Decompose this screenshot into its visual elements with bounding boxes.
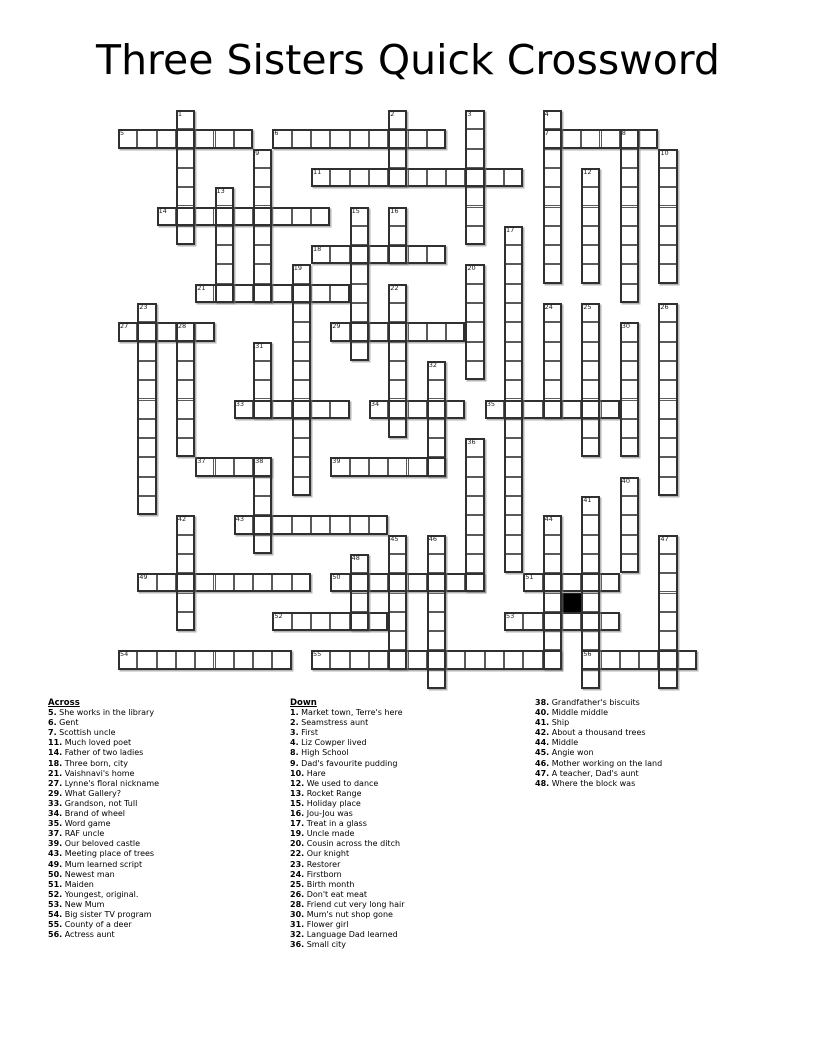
- grid-cell[interactable]: [504, 554, 523, 573]
- grid-cell[interactable]: [562, 573, 581, 592]
- grid-cell[interactable]: [620, 226, 639, 245]
- grid-cell[interactable]: [658, 457, 677, 476]
- grid-cell[interactable]: [620, 438, 639, 457]
- grid-cell[interactable]: [311, 245, 330, 264]
- grid-cell[interactable]: [253, 361, 272, 380]
- grid-cell[interactable]: [253, 264, 272, 283]
- grid-cell[interactable]: [504, 477, 523, 496]
- grid-cell[interactable]: [176, 322, 195, 341]
- grid-cell[interactable]: [253, 477, 272, 496]
- grid-cell[interactable]: [350, 457, 369, 476]
- grid-cell[interactable]: [581, 438, 600, 457]
- grid-cell[interactable]: [658, 419, 677, 438]
- grid-cell[interactable]: [658, 303, 677, 322]
- grid-cell[interactable]: [543, 554, 562, 573]
- grid-cell[interactable]: [658, 593, 677, 612]
- grid-cell[interactable]: [427, 400, 446, 419]
- grid-cell[interactable]: [253, 457, 272, 476]
- grid-cell[interactable]: [581, 400, 600, 419]
- grid-cell[interactable]: [176, 554, 195, 573]
- grid-cell[interactable]: [427, 535, 446, 554]
- grid-cell[interactable]: [408, 168, 427, 187]
- grid-cell[interactable]: [350, 284, 369, 303]
- grid-cell[interactable]: [350, 303, 369, 322]
- grid-cell[interactable]: [427, 380, 446, 399]
- grid-cell[interactable]: [639, 129, 658, 148]
- grid-cell[interactable]: [504, 438, 523, 457]
- grid-cell[interactable]: [292, 612, 311, 631]
- grid-cell[interactable]: [581, 515, 600, 534]
- grid-cell[interactable]: [427, 457, 446, 476]
- grid-cell[interactable]: [234, 207, 253, 226]
- grid-cell[interactable]: [581, 168, 600, 187]
- grid-cell[interactable]: [176, 187, 195, 206]
- grid-cell[interactable]: [543, 129, 562, 148]
- grid-cell[interactable]: [215, 226, 234, 245]
- grid-cell[interactable]: [195, 573, 214, 592]
- grid-cell[interactable]: [658, 149, 677, 168]
- grid-cell[interactable]: [504, 264, 523, 283]
- grid-cell[interactable]: [118, 650, 137, 669]
- grid-cell[interactable]: [253, 284, 272, 303]
- grid-cell[interactable]: [388, 535, 407, 554]
- grid-cell[interactable]: [137, 400, 156, 419]
- grid-cell[interactable]: [311, 284, 330, 303]
- grid-cell[interactable]: [330, 515, 349, 534]
- grid-cell[interactable]: [369, 322, 388, 341]
- grid-cell[interactable]: [369, 245, 388, 264]
- grid-cell[interactable]: [465, 303, 484, 322]
- grid-cell[interactable]: [465, 149, 484, 168]
- grid-cell[interactable]: [388, 593, 407, 612]
- grid-cell[interactable]: [658, 554, 677, 573]
- grid-cell[interactable]: [369, 650, 388, 669]
- grid-cell[interactable]: [465, 187, 484, 206]
- grid-cell[interactable]: [601, 612, 620, 631]
- grid-cell[interactable]: [388, 361, 407, 380]
- grid-cell[interactable]: [562, 400, 581, 419]
- grid-cell[interactable]: [581, 342, 600, 361]
- grid-cell[interactable]: [639, 650, 658, 669]
- grid-cell[interactable]: [253, 535, 272, 554]
- grid-cell[interactable]: [350, 573, 369, 592]
- grid-cell[interactable]: [446, 168, 465, 187]
- grid-cell[interactable]: [658, 187, 677, 206]
- grid-cell[interactable]: [523, 612, 542, 631]
- grid-cell[interactable]: [408, 573, 427, 592]
- grid-cell[interactable]: [330, 129, 349, 148]
- grid-cell[interactable]: [388, 380, 407, 399]
- grid-cell[interactable]: [157, 650, 176, 669]
- grid-cell[interactable]: [504, 245, 523, 264]
- grid-cell[interactable]: [504, 457, 523, 476]
- grid-cell[interactable]: [388, 110, 407, 129]
- grid-cell[interactable]: [176, 419, 195, 438]
- grid-cell[interactable]: [658, 322, 677, 341]
- grid-cell[interactable]: [562, 612, 581, 631]
- grid-cell[interactable]: [253, 207, 272, 226]
- grid-cell[interactable]: [330, 612, 349, 631]
- grid-cell[interactable]: [504, 650, 523, 669]
- grid-cell[interactable]: [658, 670, 677, 689]
- grid-cell[interactable]: [504, 400, 523, 419]
- grid-cell[interactable]: [427, 612, 446, 631]
- grid-cell[interactable]: [292, 515, 311, 534]
- grid-cell[interactable]: [581, 612, 600, 631]
- grid-cell[interactable]: [465, 284, 484, 303]
- grid-cell[interactable]: [620, 496, 639, 515]
- grid-cell[interactable]: [408, 322, 427, 341]
- grid-cell[interactable]: [215, 284, 234, 303]
- grid-cell[interactable]: [465, 438, 484, 457]
- grid-cell[interactable]: [292, 477, 311, 496]
- grid-cell[interactable]: [465, 650, 484, 669]
- grid-cell[interactable]: [504, 342, 523, 361]
- grid-cell[interactable]: [388, 226, 407, 245]
- grid-cell[interactable]: [369, 515, 388, 534]
- grid-cell[interactable]: [465, 342, 484, 361]
- grid-cell[interactable]: [504, 284, 523, 303]
- grid-cell[interactable]: [543, 264, 562, 283]
- grid-cell[interactable]: [292, 438, 311, 457]
- grid-cell[interactable]: [581, 187, 600, 206]
- grid-cell[interactable]: [581, 496, 600, 515]
- grid-cell[interactable]: [543, 573, 562, 592]
- grid-cell[interactable]: [350, 342, 369, 361]
- grid-cell[interactable]: [427, 322, 446, 341]
- grid-cell[interactable]: [658, 400, 677, 419]
- grid-cell[interactable]: [234, 284, 253, 303]
- grid-cell[interactable]: [330, 284, 349, 303]
- grid-cell[interactable]: [543, 593, 562, 612]
- grid-cell[interactable]: [465, 496, 484, 515]
- grid-cell[interactable]: [543, 226, 562, 245]
- grid-cell[interactable]: [620, 515, 639, 534]
- grid-cell[interactable]: [581, 207, 600, 226]
- grid-cell[interactable]: [311, 515, 330, 534]
- grid-cell[interactable]: [620, 400, 639, 419]
- grid-cell[interactable]: [350, 264, 369, 283]
- grid-cell[interactable]: [292, 207, 311, 226]
- grid-cell[interactable]: [234, 515, 253, 534]
- grid-cell[interactable]: [543, 400, 562, 419]
- grid-cell[interactable]: [658, 226, 677, 245]
- grid-cell[interactable]: [601, 400, 620, 419]
- grid-cell[interactable]: [253, 573, 272, 592]
- grid-cell[interactable]: [369, 400, 388, 419]
- grid-cell[interactable]: [504, 226, 523, 245]
- grid-cell[interactable]: [504, 419, 523, 438]
- grid-cell[interactable]: [311, 612, 330, 631]
- grid-cell[interactable]: [658, 631, 677, 650]
- grid-cell[interactable]: [465, 515, 484, 534]
- grid-cell[interactable]: [620, 245, 639, 264]
- grid-cell[interactable]: [176, 650, 195, 669]
- grid-cell[interactable]: [581, 380, 600, 399]
- grid-cell[interactable]: [465, 573, 484, 592]
- grid-cell[interactable]: [658, 612, 677, 631]
- grid-cell[interactable]: [388, 457, 407, 476]
- grid-cell[interactable]: [350, 245, 369, 264]
- grid-cell[interactable]: [465, 554, 484, 573]
- grid-cell[interactable]: [446, 650, 465, 669]
- grid-cell[interactable]: [369, 129, 388, 148]
- grid-cell[interactable]: [157, 129, 176, 148]
- grid-cell[interactable]: [388, 612, 407, 631]
- grid-cell[interactable]: [137, 438, 156, 457]
- grid-cell[interactable]: [195, 284, 214, 303]
- grid-cell[interactable]: [176, 573, 195, 592]
- grid-cell[interactable]: [137, 573, 156, 592]
- grid-cell[interactable]: [543, 515, 562, 534]
- grid-cell[interactable]: [388, 245, 407, 264]
- grid-cell[interactable]: [292, 380, 311, 399]
- grid-cell[interactable]: [523, 573, 542, 592]
- grid-cell[interactable]: [427, 245, 446, 264]
- grid-cell[interactable]: [292, 284, 311, 303]
- grid-cell[interactable]: [137, 496, 156, 515]
- grid-cell[interactable]: [485, 168, 504, 187]
- grid-cell[interactable]: [350, 515, 369, 534]
- grid-cell[interactable]: [215, 573, 234, 592]
- grid-cell[interactable]: [157, 322, 176, 341]
- grid-cell[interactable]: [523, 400, 542, 419]
- grid-cell[interactable]: [620, 149, 639, 168]
- grid-cell[interactable]: [157, 207, 176, 226]
- grid-cell[interactable]: [581, 554, 600, 573]
- grid-cell[interactable]: [485, 650, 504, 669]
- grid-cell[interactable]: [581, 593, 600, 612]
- grid-cell[interactable]: [543, 207, 562, 226]
- grid-cell[interactable]: [620, 187, 639, 206]
- grid-cell[interactable]: [137, 419, 156, 438]
- grid-cell[interactable]: [427, 631, 446, 650]
- grid-cell[interactable]: [137, 342, 156, 361]
- grid-cell[interactable]: [176, 438, 195, 457]
- grid-cell[interactable]: [523, 650, 542, 669]
- grid-cell[interactable]: [330, 573, 349, 592]
- grid-cell[interactable]: [581, 535, 600, 554]
- grid-cell[interactable]: [446, 322, 465, 341]
- grid-cell[interactable]: [215, 207, 234, 226]
- grid-cell[interactable]: [581, 322, 600, 341]
- grid-cell[interactable]: [350, 129, 369, 148]
- grid-cell[interactable]: [350, 554, 369, 573]
- grid-cell[interactable]: [311, 168, 330, 187]
- grid-cell[interactable]: [388, 554, 407, 573]
- grid-cell[interactable]: [176, 612, 195, 631]
- grid-cell[interactable]: [137, 322, 156, 341]
- grid-cell[interactable]: [620, 129, 639, 148]
- grid-cell[interactable]: [543, 245, 562, 264]
- grid-cell[interactable]: [581, 226, 600, 245]
- grid-cell[interactable]: [620, 477, 639, 496]
- grid-cell[interactable]: [581, 264, 600, 283]
- grid-cell[interactable]: [292, 457, 311, 476]
- grid-cell[interactable]: [581, 419, 600, 438]
- grid-cell[interactable]: [311, 207, 330, 226]
- grid-cell[interactable]: [137, 361, 156, 380]
- grid-cell[interactable]: [408, 650, 427, 669]
- grid-cell[interactable]: [272, 207, 291, 226]
- grid-cell[interactable]: [253, 187, 272, 206]
- grid-cell[interactable]: [620, 380, 639, 399]
- grid-cell[interactable]: [427, 670, 446, 689]
- grid-cell[interactable]: [388, 129, 407, 148]
- grid-cell[interactable]: [176, 129, 195, 148]
- grid-cell[interactable]: [581, 245, 600, 264]
- grid-cell[interactable]: [620, 342, 639, 361]
- grid-cell[interactable]: [581, 573, 600, 592]
- grid-cell[interactable]: [658, 342, 677, 361]
- grid-cell[interactable]: [543, 380, 562, 399]
- grid-cell[interactable]: [658, 650, 677, 669]
- grid-cell[interactable]: [350, 207, 369, 226]
- grid-cell[interactable]: [176, 168, 195, 187]
- grid-cell[interactable]: [543, 322, 562, 341]
- grid-cell[interactable]: [253, 342, 272, 361]
- grid-cell[interactable]: [176, 226, 195, 245]
- grid-cell[interactable]: [215, 187, 234, 206]
- grid-cell[interactable]: [543, 361, 562, 380]
- grid-cell[interactable]: [388, 303, 407, 322]
- grid-cell[interactable]: [465, 129, 484, 148]
- grid-cell[interactable]: [408, 129, 427, 148]
- grid-cell[interactable]: [292, 419, 311, 438]
- grid-cell[interactable]: [350, 650, 369, 669]
- grid-cell[interactable]: [292, 400, 311, 419]
- grid-cell[interactable]: [504, 168, 523, 187]
- grid-cell[interactable]: [408, 400, 427, 419]
- grid-cell[interactable]: [427, 554, 446, 573]
- grid-cell[interactable]: [234, 129, 253, 148]
- grid-cell[interactable]: [292, 303, 311, 322]
- grid-cell[interactable]: [330, 400, 349, 419]
- grid-cell[interactable]: [234, 650, 253, 669]
- grid-cell[interactable]: [311, 400, 330, 419]
- grid-cell[interactable]: [253, 380, 272, 399]
- grid-cell[interactable]: [137, 650, 156, 669]
- grid-cell[interactable]: [543, 535, 562, 554]
- grid-cell[interactable]: [369, 573, 388, 592]
- grid-cell[interactable]: [176, 342, 195, 361]
- grid-cell[interactable]: [427, 438, 446, 457]
- grid-cell[interactable]: [253, 168, 272, 187]
- grid-cell[interactable]: [562, 129, 581, 148]
- grid-cell[interactable]: [543, 110, 562, 129]
- grid-cell[interactable]: [658, 168, 677, 187]
- grid-cell[interactable]: [658, 264, 677, 283]
- grid-cell[interactable]: [408, 457, 427, 476]
- grid-cell[interactable]: [465, 477, 484, 496]
- grid-cell[interactable]: [253, 400, 272, 419]
- grid-cell[interactable]: [272, 400, 291, 419]
- grid-cell[interactable]: [658, 573, 677, 592]
- grid-cell[interactable]: [581, 361, 600, 380]
- grid-cell[interactable]: [311, 650, 330, 669]
- grid-cell[interactable]: [137, 477, 156, 496]
- grid-cell[interactable]: [427, 419, 446, 438]
- grid-cell[interactable]: [658, 438, 677, 457]
- grid-cell[interactable]: [176, 515, 195, 534]
- grid-cell[interactable]: [272, 284, 291, 303]
- grid-cell[interactable]: [388, 573, 407, 592]
- grid-cell[interactable]: [234, 400, 253, 419]
- grid-cell[interactable]: [137, 129, 156, 148]
- grid-cell[interactable]: [543, 342, 562, 361]
- grid-cell[interactable]: [330, 457, 349, 476]
- grid-cell[interactable]: [504, 322, 523, 341]
- grid-cell[interactable]: [543, 149, 562, 168]
- grid-cell[interactable]: [504, 612, 523, 631]
- grid-cell[interactable]: [292, 322, 311, 341]
- grid-cell[interactable]: [118, 322, 137, 341]
- grid-cell[interactable]: [330, 650, 349, 669]
- grid-cell[interactable]: [253, 226, 272, 245]
- grid-cell[interactable]: [253, 496, 272, 515]
- grid-cell[interactable]: [485, 400, 504, 419]
- grid-cell[interactable]: [272, 515, 291, 534]
- grid-cell[interactable]: [620, 207, 639, 226]
- grid-cell[interactable]: [292, 342, 311, 361]
- grid-cell[interactable]: [176, 593, 195, 612]
- grid-cell[interactable]: [350, 226, 369, 245]
- grid-cell[interactable]: [658, 380, 677, 399]
- grid-cell[interactable]: [350, 322, 369, 341]
- grid-cell[interactable]: [504, 361, 523, 380]
- grid-cell[interactable]: [388, 168, 407, 187]
- grid-cell[interactable]: [465, 168, 484, 187]
- grid-cell[interactable]: [350, 612, 369, 631]
- grid-cell[interactable]: [543, 650, 562, 669]
- grid-cell[interactable]: [543, 303, 562, 322]
- grid-cell[interactable]: [176, 207, 195, 226]
- grid-cell[interactable]: [581, 631, 600, 650]
- grid-cell[interactable]: [465, 110, 484, 129]
- grid-cell[interactable]: [157, 573, 176, 592]
- grid-cell[interactable]: [427, 129, 446, 148]
- grid-cell[interactable]: [388, 631, 407, 650]
- grid-cell[interactable]: [350, 168, 369, 187]
- grid-cell[interactable]: [176, 110, 195, 129]
- grid-cell[interactable]: [137, 457, 156, 476]
- grid-cell[interactable]: [292, 264, 311, 283]
- grid-cell[interactable]: [620, 284, 639, 303]
- grid-cell[interactable]: [369, 168, 388, 187]
- grid-cell[interactable]: [253, 650, 272, 669]
- grid-cell[interactable]: [215, 457, 234, 476]
- grid-cell[interactable]: [369, 612, 388, 631]
- grid-cell[interactable]: [195, 129, 214, 148]
- grid-cell[interactable]: [330, 322, 349, 341]
- grid-cell[interactable]: [272, 129, 291, 148]
- grid-cell[interactable]: [543, 187, 562, 206]
- grid-cell[interactable]: [504, 380, 523, 399]
- grid-cell[interactable]: [504, 535, 523, 554]
- grid-cell[interactable]: [388, 342, 407, 361]
- grid-cell[interactable]: [581, 650, 600, 669]
- grid-cell[interactable]: [176, 535, 195, 554]
- grid-cell[interactable]: [176, 400, 195, 419]
- grid-cell[interactable]: [620, 264, 639, 283]
- grid-cell[interactable]: [620, 419, 639, 438]
- grid-cell[interactable]: [195, 207, 214, 226]
- grid-cell[interactable]: [330, 245, 349, 264]
- grid-cell[interactable]: [543, 612, 562, 631]
- grid-cell[interactable]: [253, 515, 272, 534]
- grid-cell[interactable]: [504, 303, 523, 322]
- grid-cell[interactable]: [620, 650, 639, 669]
